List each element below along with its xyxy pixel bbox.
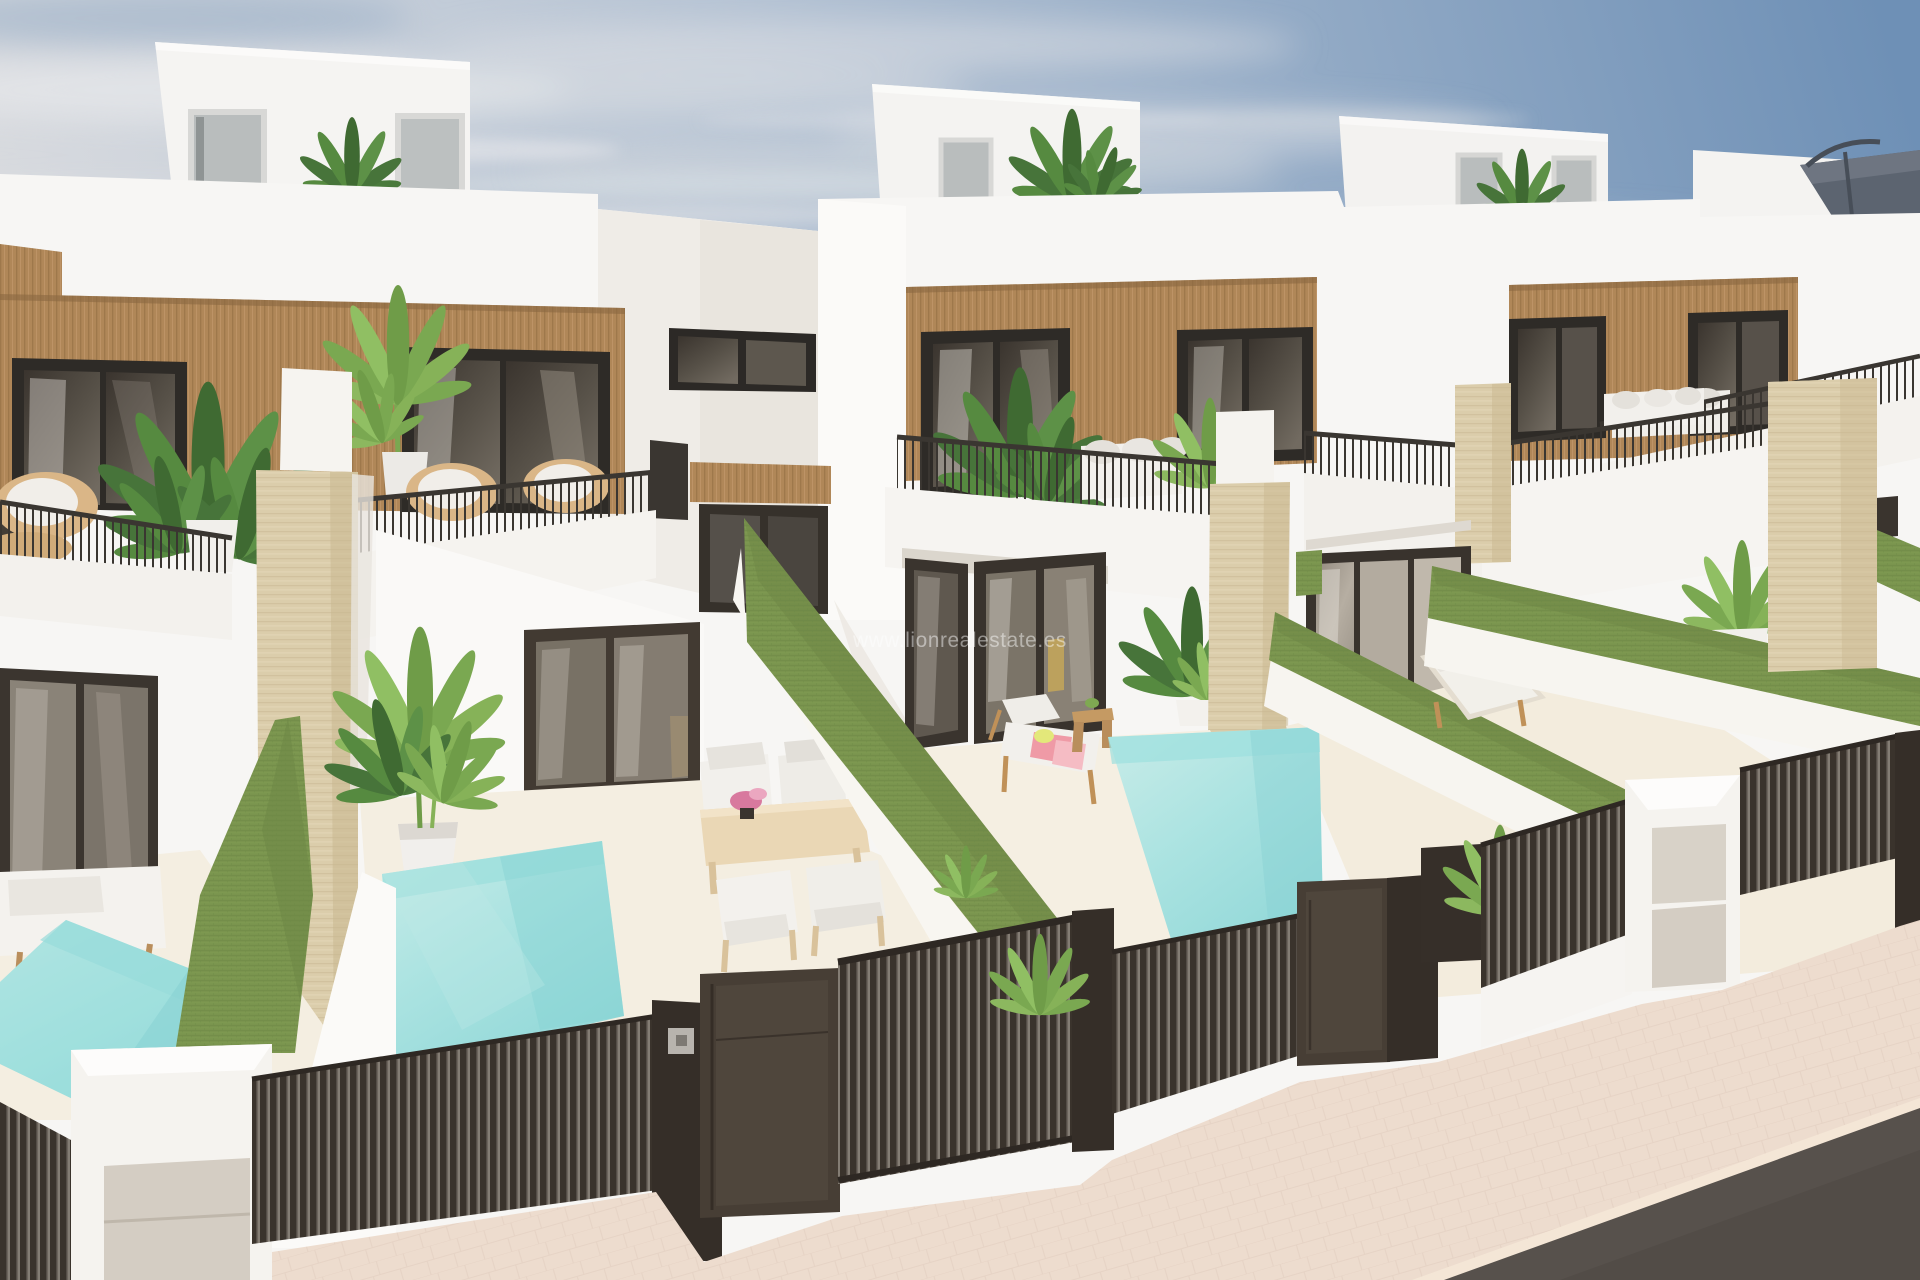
svg-text:www.lionrealestate.es: www.lionrealestate.es — [852, 629, 1067, 652]
